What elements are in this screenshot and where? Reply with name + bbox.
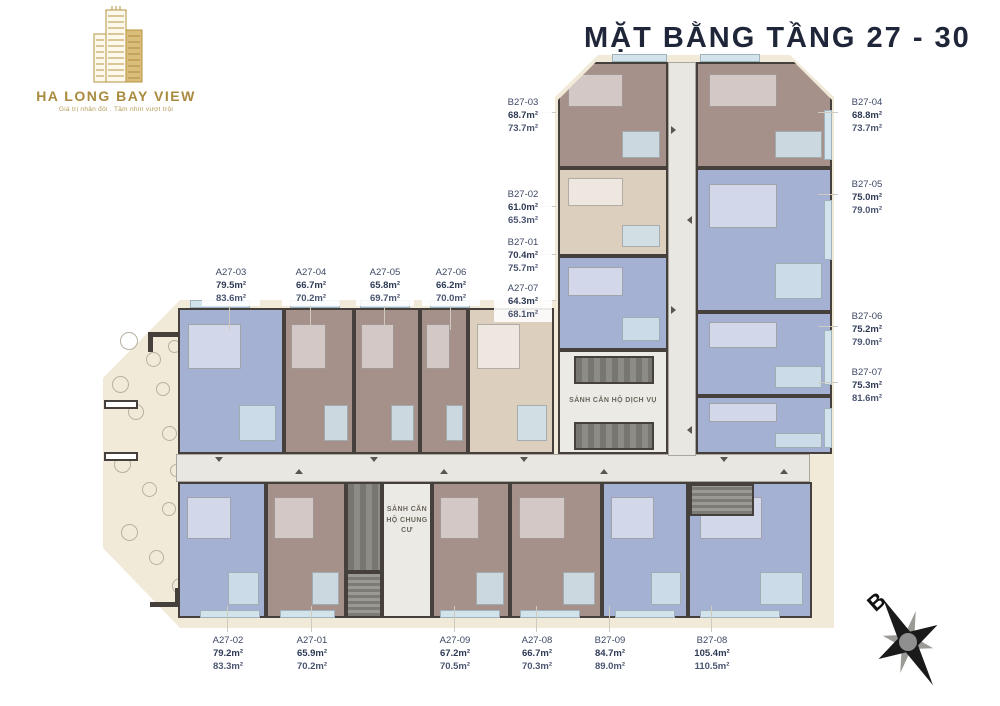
- unit-area-2: 83.3m²: [199, 661, 257, 674]
- unit-b27-05-footprint: [696, 168, 832, 312]
- unit-label-a27-06: A27-06 66.2m² 70.0m²: [422, 266, 480, 306]
- unit-area-1: 67.2m²: [426, 648, 484, 661]
- building-logo-icon: [70, 6, 162, 86]
- unit-a27-07-footprint: [468, 308, 554, 454]
- unit-area-1: 66.2m²: [422, 280, 480, 293]
- unit-area-1: 75.3m²: [838, 380, 896, 393]
- unit-code: B27-01: [494, 237, 552, 250]
- stairwell: [690, 484, 754, 516]
- corridor-arrow: [687, 426, 692, 434]
- unit-code: A27-07: [494, 283, 552, 296]
- unit-label-b27-03: B27-03 68.7m² 73.7m²: [494, 96, 552, 136]
- unit-b27-02-footprint: [558, 168, 668, 256]
- unit-area-1: 105.4m²: [683, 648, 741, 661]
- unit-b27-09-footprint: [602, 482, 688, 618]
- unit-code: B27-05: [838, 179, 896, 192]
- unit-area-2: 69.7m²: [356, 293, 414, 306]
- unit-area-2: 68.1m²: [494, 309, 552, 322]
- unit-area-1: 70.4m²: [494, 250, 552, 263]
- page-title: MẶT BẰNG TẦNG 27 - 30: [584, 22, 971, 55]
- balcony: [200, 610, 260, 618]
- unit-a27-04-footprint: [284, 308, 354, 454]
- unit-a27-03-footprint: [178, 308, 284, 454]
- unit-label-b27-09: B27-09 84.7m² 89.0m²: [581, 634, 639, 674]
- leader-line: [450, 304, 451, 330]
- leader-line: [229, 304, 230, 330]
- unit-b27-03-footprint: [558, 62, 668, 168]
- unit-area-2: 70.2m²: [282, 293, 340, 306]
- corridor-arrow: [370, 457, 378, 462]
- leader-line: [818, 382, 838, 383]
- corridor-horizontal: [176, 454, 810, 482]
- unit-area-1: 79.5m²: [202, 280, 260, 293]
- terrace-wall: [104, 400, 138, 409]
- leader-line: [818, 326, 838, 327]
- residential-lobby-label: SẢNH CĂN HỘ CHUNG CƯ: [383, 505, 431, 537]
- corridor-vertical: [668, 62, 696, 456]
- unit-code: B27-04: [838, 97, 896, 110]
- tree: [156, 382, 170, 396]
- balcony: [824, 330, 832, 385]
- unit-label-b27-07: B27-07 75.3m² 81.6m²: [838, 366, 896, 406]
- unit-a27-05-footprint: [354, 308, 420, 454]
- unit-label-b27-02: B27-02 61.0m² 65.3m²: [494, 188, 552, 228]
- leader-line: [384, 304, 385, 330]
- unit-label-a27-03: A27-03 79.5m² 83.6m²: [202, 266, 260, 306]
- unit-code: B27-09: [581, 635, 639, 648]
- balcony: [824, 200, 832, 260]
- unit-area-2: 79.0m²: [838, 337, 896, 350]
- leader-line: [454, 606, 455, 632]
- unit-area-1: 75.0m²: [838, 192, 896, 205]
- unit-code: B27-03: [494, 97, 552, 110]
- tree: [149, 550, 164, 565]
- unit-area-1: 75.2m²: [838, 324, 896, 337]
- unit-label-b27-08: B27-08 105.4m² 110.5m²: [683, 634, 741, 674]
- unit-a27-01-footprint: [266, 482, 346, 618]
- unit-area-2: 70.3m²: [508, 661, 566, 674]
- floor-plan-page: HA LONG BAY VIEW Giá trị nhân đôi . Tầm …: [0, 0, 1000, 706]
- unit-label-a27-04: A27-04 66.7m² 70.2m²: [282, 266, 340, 306]
- unit-area-1: 65.8m²: [356, 280, 414, 293]
- terrace-wall: [104, 452, 138, 461]
- balcony: [280, 610, 335, 618]
- unit-area-1: 65.9m²: [283, 648, 341, 661]
- unit-area-2: 70.2m²: [283, 661, 341, 674]
- balcony: [612, 54, 667, 62]
- unit-area-2: 65.3m²: [494, 215, 552, 228]
- unit-code: B27-07: [838, 367, 896, 380]
- unit-area-2: 89.0m²: [581, 661, 639, 674]
- unit-code: A27-05: [356, 267, 414, 280]
- unit-label-b27-05: B27-05 75.0m² 79.0m²: [838, 178, 896, 218]
- unit-label-b27-01: B27-01 70.4m² 75.7m²: [494, 236, 552, 276]
- unit-area-1: 68.8m²: [838, 110, 896, 123]
- unit-code: B27-02: [494, 189, 552, 202]
- unit-area-1: 79.2m²: [199, 648, 257, 661]
- unit-area-2: 110.5m²: [683, 661, 741, 674]
- corridor-arrow: [215, 457, 223, 462]
- balcony: [824, 110, 832, 160]
- unit-area-2: 81.6m²: [838, 393, 896, 406]
- tree: [112, 376, 129, 393]
- tree: [146, 352, 161, 367]
- balcony: [824, 408, 832, 448]
- unit-label-b27-04: B27-04 68.8m² 73.7m²: [838, 96, 896, 136]
- unit-label-a27-05: A27-05 65.8m² 69.7m²: [356, 266, 414, 306]
- logo-tagline: Giá trị nhân đôi . Tầm nhìn vượt trội: [36, 106, 196, 113]
- unit-area-2: 70.5m²: [426, 661, 484, 674]
- unit-label-a27-09: A27-09 67.2m² 70.5m²: [426, 634, 484, 674]
- corridor-arrow: [520, 457, 528, 462]
- corridor-arrow: [720, 457, 728, 462]
- unit-a27-08-footprint: [510, 482, 602, 618]
- unit-a27-02-footprint: [178, 482, 266, 618]
- unit-area-1: 64.3m²: [494, 296, 552, 309]
- unit-code: B27-06: [838, 311, 896, 324]
- corridor-arrow: [687, 216, 692, 224]
- unit-area-1: 68.7m²: [494, 110, 552, 123]
- unit-area-1: 61.0m²: [494, 202, 552, 215]
- unit-label-b27-06: B27-06 75.2m² 79.0m²: [838, 310, 896, 350]
- unit-label-a27-01: A27-01 65.9m² 70.2m²: [283, 634, 341, 674]
- leader-line: [311, 606, 312, 632]
- elevator-bank: [574, 422, 654, 450]
- balcony: [615, 610, 675, 618]
- balcony: [440, 610, 500, 618]
- tree: [162, 502, 176, 516]
- corridor-arrow: [600, 469, 608, 474]
- unit-b27-06-footprint: [696, 312, 832, 396]
- leader-line: [818, 194, 838, 195]
- corridor-arrow: [780, 469, 788, 474]
- unit-area-1: 66.7m²: [282, 280, 340, 293]
- compass-north-icon: B: [860, 580, 950, 692]
- leader-line: [536, 606, 537, 632]
- unit-b27-01-footprint: [558, 256, 668, 350]
- unit-code: A27-09: [426, 635, 484, 648]
- unit-area-1: 84.7m²: [581, 648, 639, 661]
- unit-area-2: 83.6m²: [202, 293, 260, 306]
- leader-line: [227, 606, 228, 632]
- corridor-arrow: [440, 469, 448, 474]
- unit-code: A27-04: [282, 267, 340, 280]
- service-lobby-label: SẢNH CĂN HỘ DỊCH VỤ: [560, 396, 666, 407]
- unit-label-a27-02: A27-02 79.2m² 83.3m²: [199, 634, 257, 674]
- tree: [142, 482, 157, 497]
- balcony: [700, 54, 760, 62]
- elevator-bank: [574, 356, 654, 384]
- unit-area-2: 73.7m²: [838, 123, 896, 136]
- unit-b27-07-footprint: [696, 396, 832, 454]
- unit-a27-06-footprint: [420, 308, 468, 454]
- balcony: [520, 610, 580, 618]
- unit-code: B27-08: [683, 635, 741, 648]
- corridor-arrow: [671, 306, 676, 314]
- logo-name: HA LONG BAY VIEW: [36, 88, 196, 104]
- unit-code: A27-01: [283, 635, 341, 648]
- stairwell: [346, 572, 382, 618]
- tree: [121, 524, 138, 541]
- leader-line: [711, 606, 712, 632]
- unit-area-2: 70.0m²: [422, 293, 480, 306]
- corridor-arrow: [671, 126, 676, 134]
- unit-area-2: 73.7m²: [494, 123, 552, 136]
- compass-label: B: [862, 587, 891, 616]
- unit-code: A27-08: [508, 635, 566, 648]
- corridor-arrow: [295, 469, 303, 474]
- unit-area-1: 66.7m²: [508, 648, 566, 661]
- terrace-wall: [148, 332, 153, 352]
- tree: [162, 426, 177, 441]
- leader-line: [609, 606, 610, 632]
- leader-line: [310, 304, 311, 330]
- tree: [120, 332, 138, 350]
- unit-area-2: 79.0m²: [838, 205, 896, 218]
- unit-area-2: 75.7m²: [494, 263, 552, 276]
- residential-lobby-block: [382, 482, 432, 618]
- unit-code: A27-03: [202, 267, 260, 280]
- unit-label-a27-07: A27-07 64.3m² 68.1m²: [494, 282, 552, 322]
- unit-a27-09-footprint: [432, 482, 510, 618]
- leader-line: [818, 112, 838, 113]
- balcony: [700, 610, 780, 618]
- unit-label-a27-08: A27-08 66.7m² 70.3m²: [508, 634, 566, 674]
- unit-code: A27-06: [422, 267, 480, 280]
- elevator-core: [346, 482, 382, 572]
- unit-code: A27-02: [199, 635, 257, 648]
